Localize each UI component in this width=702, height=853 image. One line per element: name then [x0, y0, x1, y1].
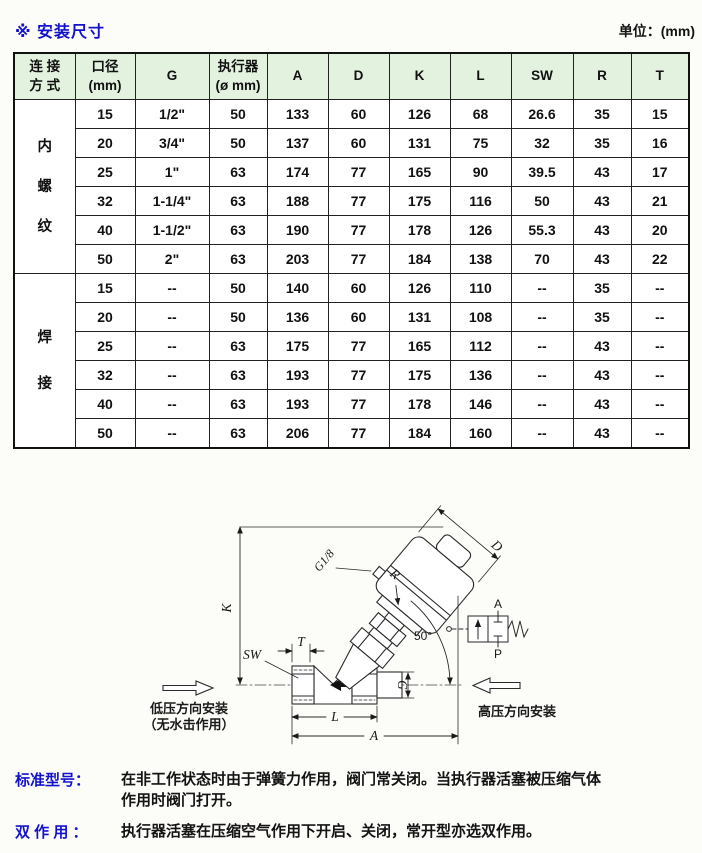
table-cell: 174	[267, 158, 328, 187]
col-header-r: R	[573, 53, 631, 100]
table-cell: 15	[75, 274, 135, 303]
table-cell: 178	[389, 390, 450, 419]
table-cell: 146	[450, 390, 511, 419]
table-cell: 126	[389, 274, 450, 303]
table-cell: 25	[75, 332, 135, 361]
table-cell: 43	[573, 332, 631, 361]
table-cell: 43	[573, 245, 631, 274]
table-cell: 140	[267, 274, 328, 303]
table-cell: 75	[450, 129, 511, 158]
table-row: 25 1" 63 174 77 165 90 39.5 43 17	[14, 158, 689, 187]
table-cell: 35	[573, 129, 631, 158]
table-cell: 43	[573, 158, 631, 187]
table-cell: 77	[328, 390, 389, 419]
dimensions-table: 连 接 方 式 口径 (mm) G 执行器 (ø mm) A D K L SW …	[13, 52, 690, 449]
table-cell: 55.3	[511, 216, 573, 245]
table-cell: 190	[267, 216, 328, 245]
table-cell: 126	[389, 100, 450, 129]
dim-L-label: L	[330, 709, 339, 724]
dim-SW-label: SW	[243, 647, 263, 662]
table-cell: 193	[267, 390, 328, 419]
table-cell: 35	[573, 303, 631, 332]
table-cell: 175	[267, 332, 328, 361]
table-cell: 137	[267, 129, 328, 158]
table-cell: 60	[328, 274, 389, 303]
table-cell: 50	[209, 303, 267, 332]
table-cell: 60	[328, 303, 389, 332]
table-cell: 77	[328, 245, 389, 274]
table-row: 40 1-1/2" 63 190 77 178 126 55.3 43 20	[14, 216, 689, 245]
table-cell: --	[135, 274, 209, 303]
table-cell: 50	[209, 129, 267, 158]
table-cell: 175	[389, 187, 450, 216]
table-cell: 63	[209, 187, 267, 216]
table-cell: --	[135, 361, 209, 390]
table-cell: 1-1/4"	[135, 187, 209, 216]
col-header-sw: SW	[511, 53, 573, 100]
dim-D-ext	[419, 506, 441, 532]
col-header-bore: 口径 (mm)	[75, 53, 135, 100]
col-header-g: G	[135, 53, 209, 100]
table-cell: 77	[328, 419, 389, 449]
table-cell: 17	[631, 158, 689, 187]
col-header-actuator: 执行器 (ø mm)	[209, 53, 267, 100]
table-cell: 70	[511, 245, 573, 274]
high-pressure-arrow	[473, 678, 520, 693]
spring-icon	[508, 621, 528, 637]
table-cell: --	[511, 390, 573, 419]
table-cell: 16	[631, 129, 689, 158]
table-cell: 77	[328, 361, 389, 390]
table-cell: 40	[75, 390, 135, 419]
table-cell: 43	[573, 419, 631, 449]
table-cell: --	[511, 303, 573, 332]
table-cell: 193	[267, 361, 328, 390]
table-cell: 60	[328, 129, 389, 158]
table-cell: 2"	[135, 245, 209, 274]
table-cell: 77	[328, 216, 389, 245]
table-cell: 77	[328, 158, 389, 187]
table-cell: 39.5	[511, 158, 573, 187]
table-cell: 126	[450, 216, 511, 245]
unit-label: 单位：(mm)	[619, 21, 695, 41]
section-label-welding: 焊 接	[14, 274, 75, 449]
table-cell: 63	[209, 419, 267, 449]
table-cell: --	[135, 332, 209, 361]
table-cell: 15	[75, 100, 135, 129]
table-cell: 188	[267, 187, 328, 216]
table-cell: 20	[75, 303, 135, 332]
dim-T-label: T	[297, 634, 306, 649]
table-cell: 131	[389, 129, 450, 158]
table-cell: 108	[450, 303, 511, 332]
table-row: 40 -- 63 193 77 178 146 -- 43 --	[14, 390, 689, 419]
table-cell: 116	[450, 187, 511, 216]
table-cell: 63	[209, 245, 267, 274]
low-pressure-sublabel: （无水击作用）	[143, 717, 234, 732]
table-cell: 26.6	[511, 100, 573, 129]
table-row: 25 -- 63 175 77 165 112 -- 43 --	[14, 332, 689, 361]
table-row: 内 螺 纹 15 1/2" 50 133 60 126 68 26.6 35 1…	[14, 100, 689, 129]
col-header-a: A	[267, 53, 328, 100]
table-cell: 77	[328, 187, 389, 216]
table-row: 32 -- 63 193 77 175 136 -- 43 --	[14, 361, 689, 390]
table-row: 20 3/4" 50 137 60 131 75 32 35 16	[14, 129, 689, 158]
table-cell: 40	[75, 216, 135, 245]
table-cell: 32	[511, 129, 573, 158]
table-cell: 77	[328, 332, 389, 361]
table-cell: --	[631, 274, 689, 303]
table-cell: 32	[75, 187, 135, 216]
port-g18-leader	[336, 568, 371, 571]
table-cell: 160	[450, 419, 511, 449]
standard-model-label: 标准型号：	[15, 769, 105, 790]
table-row: 20 -- 50 136 60 131 108 -- 35 --	[14, 303, 689, 332]
col-header-k: K	[389, 53, 450, 100]
table-cell: 1-1/2"	[135, 216, 209, 245]
table-cell: 60	[328, 100, 389, 129]
dim-D-label: D	[488, 536, 506, 555]
col-header-d: D	[328, 53, 389, 100]
table-cell: --	[631, 332, 689, 361]
table-cell: 138	[450, 245, 511, 274]
table-cell: 63	[209, 361, 267, 390]
table-cell: 178	[389, 216, 450, 245]
table-cell: 184	[389, 245, 450, 274]
table-cell: 63	[209, 216, 267, 245]
table-cell: 25	[75, 158, 135, 187]
table-cell: --	[631, 303, 689, 332]
table-cell: 136	[450, 361, 511, 390]
table-cell: --	[511, 332, 573, 361]
table-cell: 203	[267, 245, 328, 274]
table-cell: 131	[389, 303, 450, 332]
table-cell: 20	[631, 216, 689, 245]
table-cell: --	[511, 361, 573, 390]
table-cell: 63	[209, 332, 267, 361]
table-cell: --	[511, 274, 573, 303]
table-cell: --	[631, 361, 689, 390]
table-cell: 1/2"	[135, 100, 209, 129]
section-label-internal-thread: 内 螺 纹	[14, 100, 75, 274]
table-cell: --	[135, 390, 209, 419]
table-cell: 136	[267, 303, 328, 332]
table-cell: 112	[450, 332, 511, 361]
table-cell: 133	[267, 100, 328, 129]
table-cell: 165	[389, 332, 450, 361]
table-cell: 184	[389, 419, 450, 449]
table-cell: 22	[631, 245, 689, 274]
table-cell: 50	[209, 274, 267, 303]
table-cell: 43	[573, 361, 631, 390]
valve-technical-drawing: D R G1/8 K T SW G 50° L A 低压方向安装 （无水击作用）…	[0, 468, 702, 778]
table-cell: 15	[631, 100, 689, 129]
table-cell: 35	[573, 100, 631, 129]
double-acting-note: 双 作 用 ： 执行器活塞在压缩空气作用下开启、关闭，常开型亦选双作用。	[15, 821, 696, 842]
table-cell: 21	[631, 187, 689, 216]
table-cell: --	[135, 303, 209, 332]
angle-label: 50°	[414, 629, 432, 643]
table-cell: 63	[209, 390, 267, 419]
table-cell: 50	[75, 419, 135, 449]
port-g18-label: G1/8	[311, 547, 337, 574]
table-cell: 35	[573, 274, 631, 303]
table-cell: 20	[75, 129, 135, 158]
table-cell: 165	[389, 158, 450, 187]
col-header-connection: 连 接 方 式	[14, 53, 75, 100]
double-acting-text: 执行器活塞在压缩空气作用下开启、关闭，常开型亦选双作用。	[121, 821, 696, 842]
pneumatic-port-a-label: A	[494, 597, 502, 611]
double-acting-label: 双 作 用 ：	[15, 821, 105, 842]
low-pressure-label: 低压方向安装	[149, 701, 228, 716]
pneumatic-symbol: A P	[447, 597, 528, 661]
table-cell: 43	[573, 187, 631, 216]
standard-model-text: 在非工作状态时由于弹簧力作用，阀门常关闭。当执行器活塞被压缩气体 作用时阀门打开…	[121, 769, 696, 811]
table-cell: 43	[573, 390, 631, 419]
table-cell: 50	[75, 245, 135, 274]
table-row: 焊 接 15 -- 50 140 60 126 110 -- 35 --	[14, 274, 689, 303]
dim-D-ext	[479, 556, 501, 582]
col-header-t: T	[631, 53, 689, 100]
table-cell: 50	[511, 187, 573, 216]
table-cell: 50	[209, 100, 267, 129]
table-cell: 3/4"	[135, 129, 209, 158]
table-row: 50 2" 63 203 77 184 138 70 43 22	[14, 245, 689, 274]
col-header-l: L	[450, 53, 511, 100]
dim-G-label: G	[395, 680, 410, 690]
standard-model-note: 标准型号： 在非工作状态时由于弹簧力作用，阀门常关闭。当执行器活塞被压缩气体 作…	[15, 769, 696, 811]
table-cell: --	[135, 419, 209, 449]
header-row: 连 接 方 式 口径 (mm) G 执行器 (ø mm) A D K L SW …	[14, 53, 689, 100]
table-cell: 90	[450, 158, 511, 187]
table-cell: --	[631, 390, 689, 419]
table-cell: 63	[209, 158, 267, 187]
table-cell: 68	[450, 100, 511, 129]
dim-A-label: A	[369, 728, 379, 743]
page-title: ※ 安装尺寸	[15, 18, 105, 42]
table-cell: 32	[75, 361, 135, 390]
table-cell: 43	[573, 216, 631, 245]
table-cell: --	[631, 419, 689, 449]
table-cell: --	[511, 419, 573, 449]
high-pressure-label: 高压方向安装	[478, 704, 556, 719]
table-cell: 175	[389, 361, 450, 390]
table-cell: 206	[267, 419, 328, 449]
dim-K-label: K	[219, 603, 234, 614]
low-pressure-arrow	[163, 681, 213, 695]
table-cell: 1"	[135, 158, 209, 187]
table-row: 50 -- 63 206 77 184 160 -- 43 --	[14, 419, 689, 449]
table-cell: 110	[450, 274, 511, 303]
table-row: 32 1-1/4" 63 188 77 175 116 50 43 21	[14, 187, 689, 216]
pneumatic-port-p-label: P	[494, 647, 502, 661]
